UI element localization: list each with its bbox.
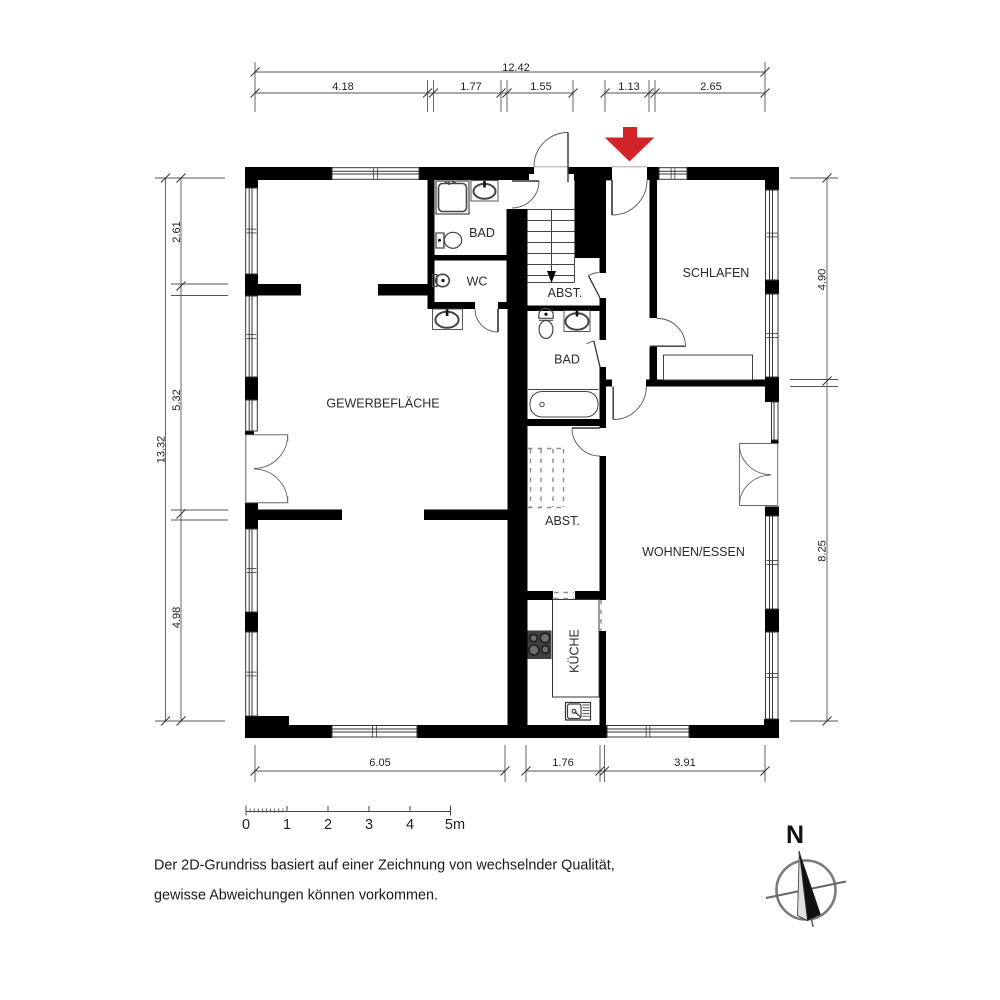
- svg-text:1: 1: [283, 817, 291, 833]
- svg-text:13.32: 13.32: [156, 436, 168, 464]
- svg-text:ABST.: ABST.: [548, 286, 583, 300]
- svg-text:2.61: 2.61: [171, 221, 183, 242]
- svg-text:1.77: 1.77: [460, 81, 481, 93]
- svg-text:gewisse Abweichungen können vo: gewisse Abweichungen können vorkommen.: [154, 888, 438, 904]
- svg-text:1.76: 1.76: [552, 757, 573, 769]
- svg-text:5.32: 5.32: [171, 389, 183, 410]
- svg-text:0: 0: [242, 817, 250, 833]
- svg-text:SCHLAFEN: SCHLAFEN: [683, 266, 750, 280]
- svg-text:12.42: 12.42: [502, 62, 530, 74]
- svg-text:ABST.: ABST.: [545, 514, 580, 528]
- svg-text:1.55: 1.55: [530, 81, 551, 93]
- svg-text:Der 2D-Grundriss basiert auf e: Der 2D-Grundriss basiert auf einer Zeich…: [154, 858, 615, 874]
- svg-text:GEWERBEFLÄCHE: GEWERBEFLÄCHE: [326, 397, 439, 411]
- svg-text:BAD: BAD: [469, 226, 495, 240]
- svg-text:BAD: BAD: [554, 353, 580, 367]
- svg-text:4.18: 4.18: [332, 81, 353, 93]
- svg-text:2.65: 2.65: [700, 81, 721, 93]
- svg-text:WOHNEN/ESSEN: WOHNEN/ESSEN: [642, 545, 745, 559]
- svg-text:4.98: 4.98: [171, 607, 183, 628]
- svg-text:KÜCHE: KÜCHE: [568, 629, 582, 673]
- svg-text:8.25: 8.25: [817, 540, 829, 561]
- svg-text:5m: 5m: [445, 817, 465, 833]
- svg-text:3.91: 3.91: [674, 757, 695, 769]
- svg-text:WC: WC: [467, 275, 488, 289]
- svg-text:4: 4: [406, 817, 414, 833]
- svg-text:2: 2: [324, 817, 332, 833]
- svg-text:6.05: 6.05: [369, 757, 390, 769]
- svg-text:N: N: [786, 821, 804, 849]
- svg-text:4.90: 4.90: [817, 269, 829, 290]
- svg-text:3: 3: [365, 817, 373, 833]
- svg-text:1.13: 1.13: [618, 81, 639, 93]
